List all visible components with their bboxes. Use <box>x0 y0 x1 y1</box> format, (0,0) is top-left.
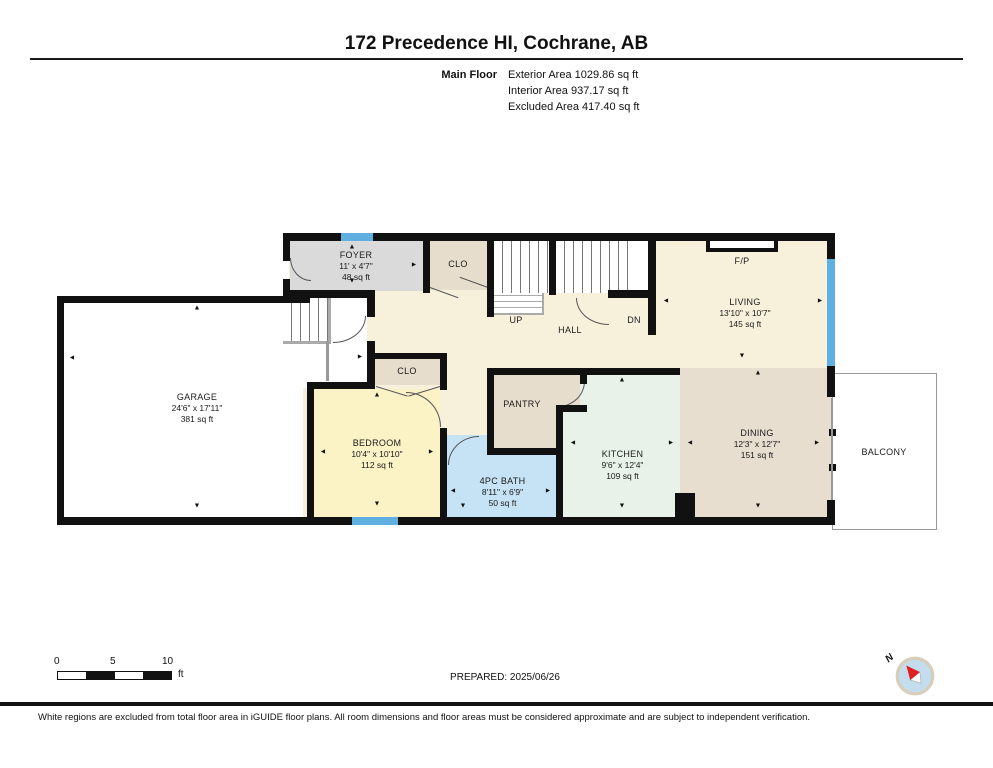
room-name: KITCHEN <box>602 449 644 460</box>
room-dims: 13'10" x 10'7" <box>719 308 770 319</box>
window-marker <box>352 517 398 525</box>
scale-tick-0: 0 <box>54 656 60 667</box>
room-label-kitchen: KITCHEN 9'6" x 12'4" 109 sq ft <box>565 449 680 482</box>
wall-segment <box>440 428 447 525</box>
room-area: 151 sq ft <box>741 450 774 461</box>
window-marker <box>827 259 835 366</box>
dimension-arrow-icon: ► <box>545 488 552 495</box>
room-dims: 8'11" x 6'9" <box>482 487 523 498</box>
room-area: 381 sq ft <box>181 414 214 425</box>
dimension-arrow-icon: ▲ <box>755 370 762 377</box>
wall-segment <box>283 290 375 298</box>
wall-segment <box>827 233 835 259</box>
wall-segment <box>307 382 314 525</box>
wall-segment <box>487 368 580 375</box>
room-name: BALCONY <box>861 447 906 458</box>
wall-segment <box>423 233 430 293</box>
room-dims: 9'6" x 12'4" <box>602 460 644 471</box>
dimension-arrow-icon: ► <box>817 298 824 305</box>
scale-segment <box>143 672 171 679</box>
page-title: 172 Precedence HI, Cochrane, AB <box>0 33 993 55</box>
wall-segment <box>648 233 656 335</box>
stairs-down-label: DN <box>619 315 649 326</box>
footer-divider <box>0 702 993 706</box>
room-name: DINING <box>740 428 773 439</box>
scale-segment <box>58 672 86 679</box>
wall-segment <box>440 353 447 390</box>
dimension-arrow-icon: ► <box>668 440 675 447</box>
room-label-pantry: PANTRY <box>487 399 557 410</box>
prepared-date: PREPARED: 2025/06/26 <box>400 672 610 683</box>
compass: N <box>893 654 941 702</box>
dimension-arrow-icon: ▼ <box>194 503 201 510</box>
compass-icon <box>893 654 937 698</box>
scale-tick-10: 10 <box>162 656 173 667</box>
fireplace-niche <box>706 237 778 252</box>
dimension-arrow-icon: ▼ <box>739 353 746 360</box>
wall-segment <box>487 368 494 455</box>
room-dims: 11' x 4'7" <box>339 261 373 272</box>
dimension-arrow-icon: ► <box>411 262 418 269</box>
room-label-hall: HALL <box>545 325 595 336</box>
scale-bar-segments <box>57 671 172 680</box>
wall-segment <box>367 290 375 317</box>
wall-segment <box>827 500 835 525</box>
room-dims: 12'3" x 12'7" <box>734 439 781 450</box>
exterior-area-text: Exterior Area 1029.86 sq ft <box>508 69 768 81</box>
dimension-arrow-icon: ▲ <box>349 244 356 251</box>
wall-segment <box>283 233 290 261</box>
wall-segment <box>580 368 680 375</box>
stairs-up-landing <box>492 293 544 315</box>
dimension-arrow-icon: ▼ <box>349 278 356 285</box>
room-name: 4PC BATH <box>480 476 526 487</box>
stairs-up-label: UP <box>501 315 531 326</box>
scale-bar: 0 5 10 ft <box>52 656 262 686</box>
wall-segment <box>307 382 375 389</box>
wall-segment <box>367 353 447 359</box>
room-name: HALL <box>558 325 582 336</box>
floor-label: Main Floor <box>380 69 497 81</box>
room-dims: 10'4" x 10'10" <box>351 449 402 460</box>
room-name: UP <box>509 315 522 326</box>
scale-segment <box>115 672 143 679</box>
stairs-up-treads <box>494 241 549 293</box>
dimension-arrow-icon: ▼ <box>619 503 626 510</box>
room-area: 145 sq ft <box>729 319 762 330</box>
room-label-bedroom: BEDROOM 10'4" x 10'10" 112 sq ft <box>317 438 437 471</box>
room-label-bedroom-closet: CLO <box>382 366 432 377</box>
dimension-arrow-icon: ◄ <box>570 440 577 447</box>
wall-segment <box>827 366 835 397</box>
fireplace-label: F/P <box>722 256 762 267</box>
room-area: 109 sq ft <box>606 471 639 482</box>
wall-segment <box>549 233 556 295</box>
room-name: PANTRY <box>503 399 540 410</box>
room-label-dining: DINING 12'3" x 12'7" 151 sq ft <box>697 428 817 461</box>
room-name: F/P <box>735 256 750 267</box>
room-name: CLO <box>397 366 416 377</box>
room-name: FOYER <box>340 250 373 261</box>
header-divider <box>30 58 963 60</box>
dimension-arrow-icon: ► <box>428 449 435 456</box>
room-label-foyer: FOYER 11' x 4'7" 48 sq ft <box>306 250 406 283</box>
room-name: DN <box>627 315 641 326</box>
room-area: 112 sq ft <box>361 460 393 471</box>
wall-segment <box>608 290 656 298</box>
room-name: BEDROOM <box>353 438 402 449</box>
room-name: LIVING <box>729 297 760 308</box>
scale-tick-5: 5 <box>110 656 116 667</box>
disclaimer-text: White regions are excluded from total fl… <box>38 712 968 723</box>
dimension-arrow-icon: ◄ <box>663 298 670 305</box>
garage-stairs <box>283 298 331 344</box>
room-name: CLO <box>448 259 467 270</box>
room-area: 48 sq ft <box>342 272 370 283</box>
room-name: GARAGE <box>177 392 217 403</box>
wall-segment <box>487 448 563 455</box>
stairs-down-treads <box>556 241 635 293</box>
wall-segment <box>57 296 64 525</box>
dimension-arrow-icon: ▲ <box>619 377 626 384</box>
stair-rail <box>326 341 329 381</box>
interior-area-text: Interior Area 937.17 sq ft <box>508 85 768 97</box>
room-dims: 24'6" x 17'11" <box>172 403 223 414</box>
dimension-arrow-icon: ▲ <box>194 305 201 312</box>
wall-segment <box>487 233 494 317</box>
dimension-arrow-icon: ◄ <box>450 488 457 495</box>
dimension-arrow-icon: ► <box>357 354 364 361</box>
scale-unit: ft <box>178 669 184 680</box>
window-marker <box>341 233 373 241</box>
wall-segment <box>367 353 375 389</box>
balcony-door-line <box>831 398 833 500</box>
scale-segment <box>86 672 114 679</box>
room-label-foyer-closet: CLO <box>433 259 483 270</box>
floorplan-canvas: GARAGE 24'6" x 17'11" 381 sq ft FOYER 11… <box>0 0 993 768</box>
room-label-balcony: BALCONY <box>834 447 934 458</box>
wall-segment <box>675 493 695 517</box>
dimension-arrow-icon: ◄ <box>320 449 327 456</box>
dimension-arrow-icon: ◄ <box>69 355 76 362</box>
room-label-garage: GARAGE 24'6" x 17'11" 381 sq ft <box>130 392 264 425</box>
room-area: 50 sq ft <box>489 498 517 509</box>
stairs-down-landing <box>635 241 648 293</box>
dimension-arrow-icon: ▼ <box>374 501 381 508</box>
wall-segment <box>556 448 563 517</box>
dimension-arrow-icon: ► <box>814 440 821 447</box>
floorplan-page: 172 Precedence HI, Cochrane, AB Main Flo… <box>0 0 993 768</box>
dimension-arrow-icon: ▲ <box>374 392 381 399</box>
dimension-arrow-icon: ▼ <box>460 503 467 510</box>
room-label-living: LIVING 13'10" x 10'7" 145 sq ft <box>695 297 795 330</box>
wall-segment <box>57 296 310 303</box>
excluded-area-text: Excluded Area 417.40 sq ft <box>508 101 768 113</box>
dimension-arrow-icon: ▼ <box>755 503 762 510</box>
room-floor <box>563 375 680 517</box>
dimension-arrow-icon: ◄ <box>687 440 694 447</box>
